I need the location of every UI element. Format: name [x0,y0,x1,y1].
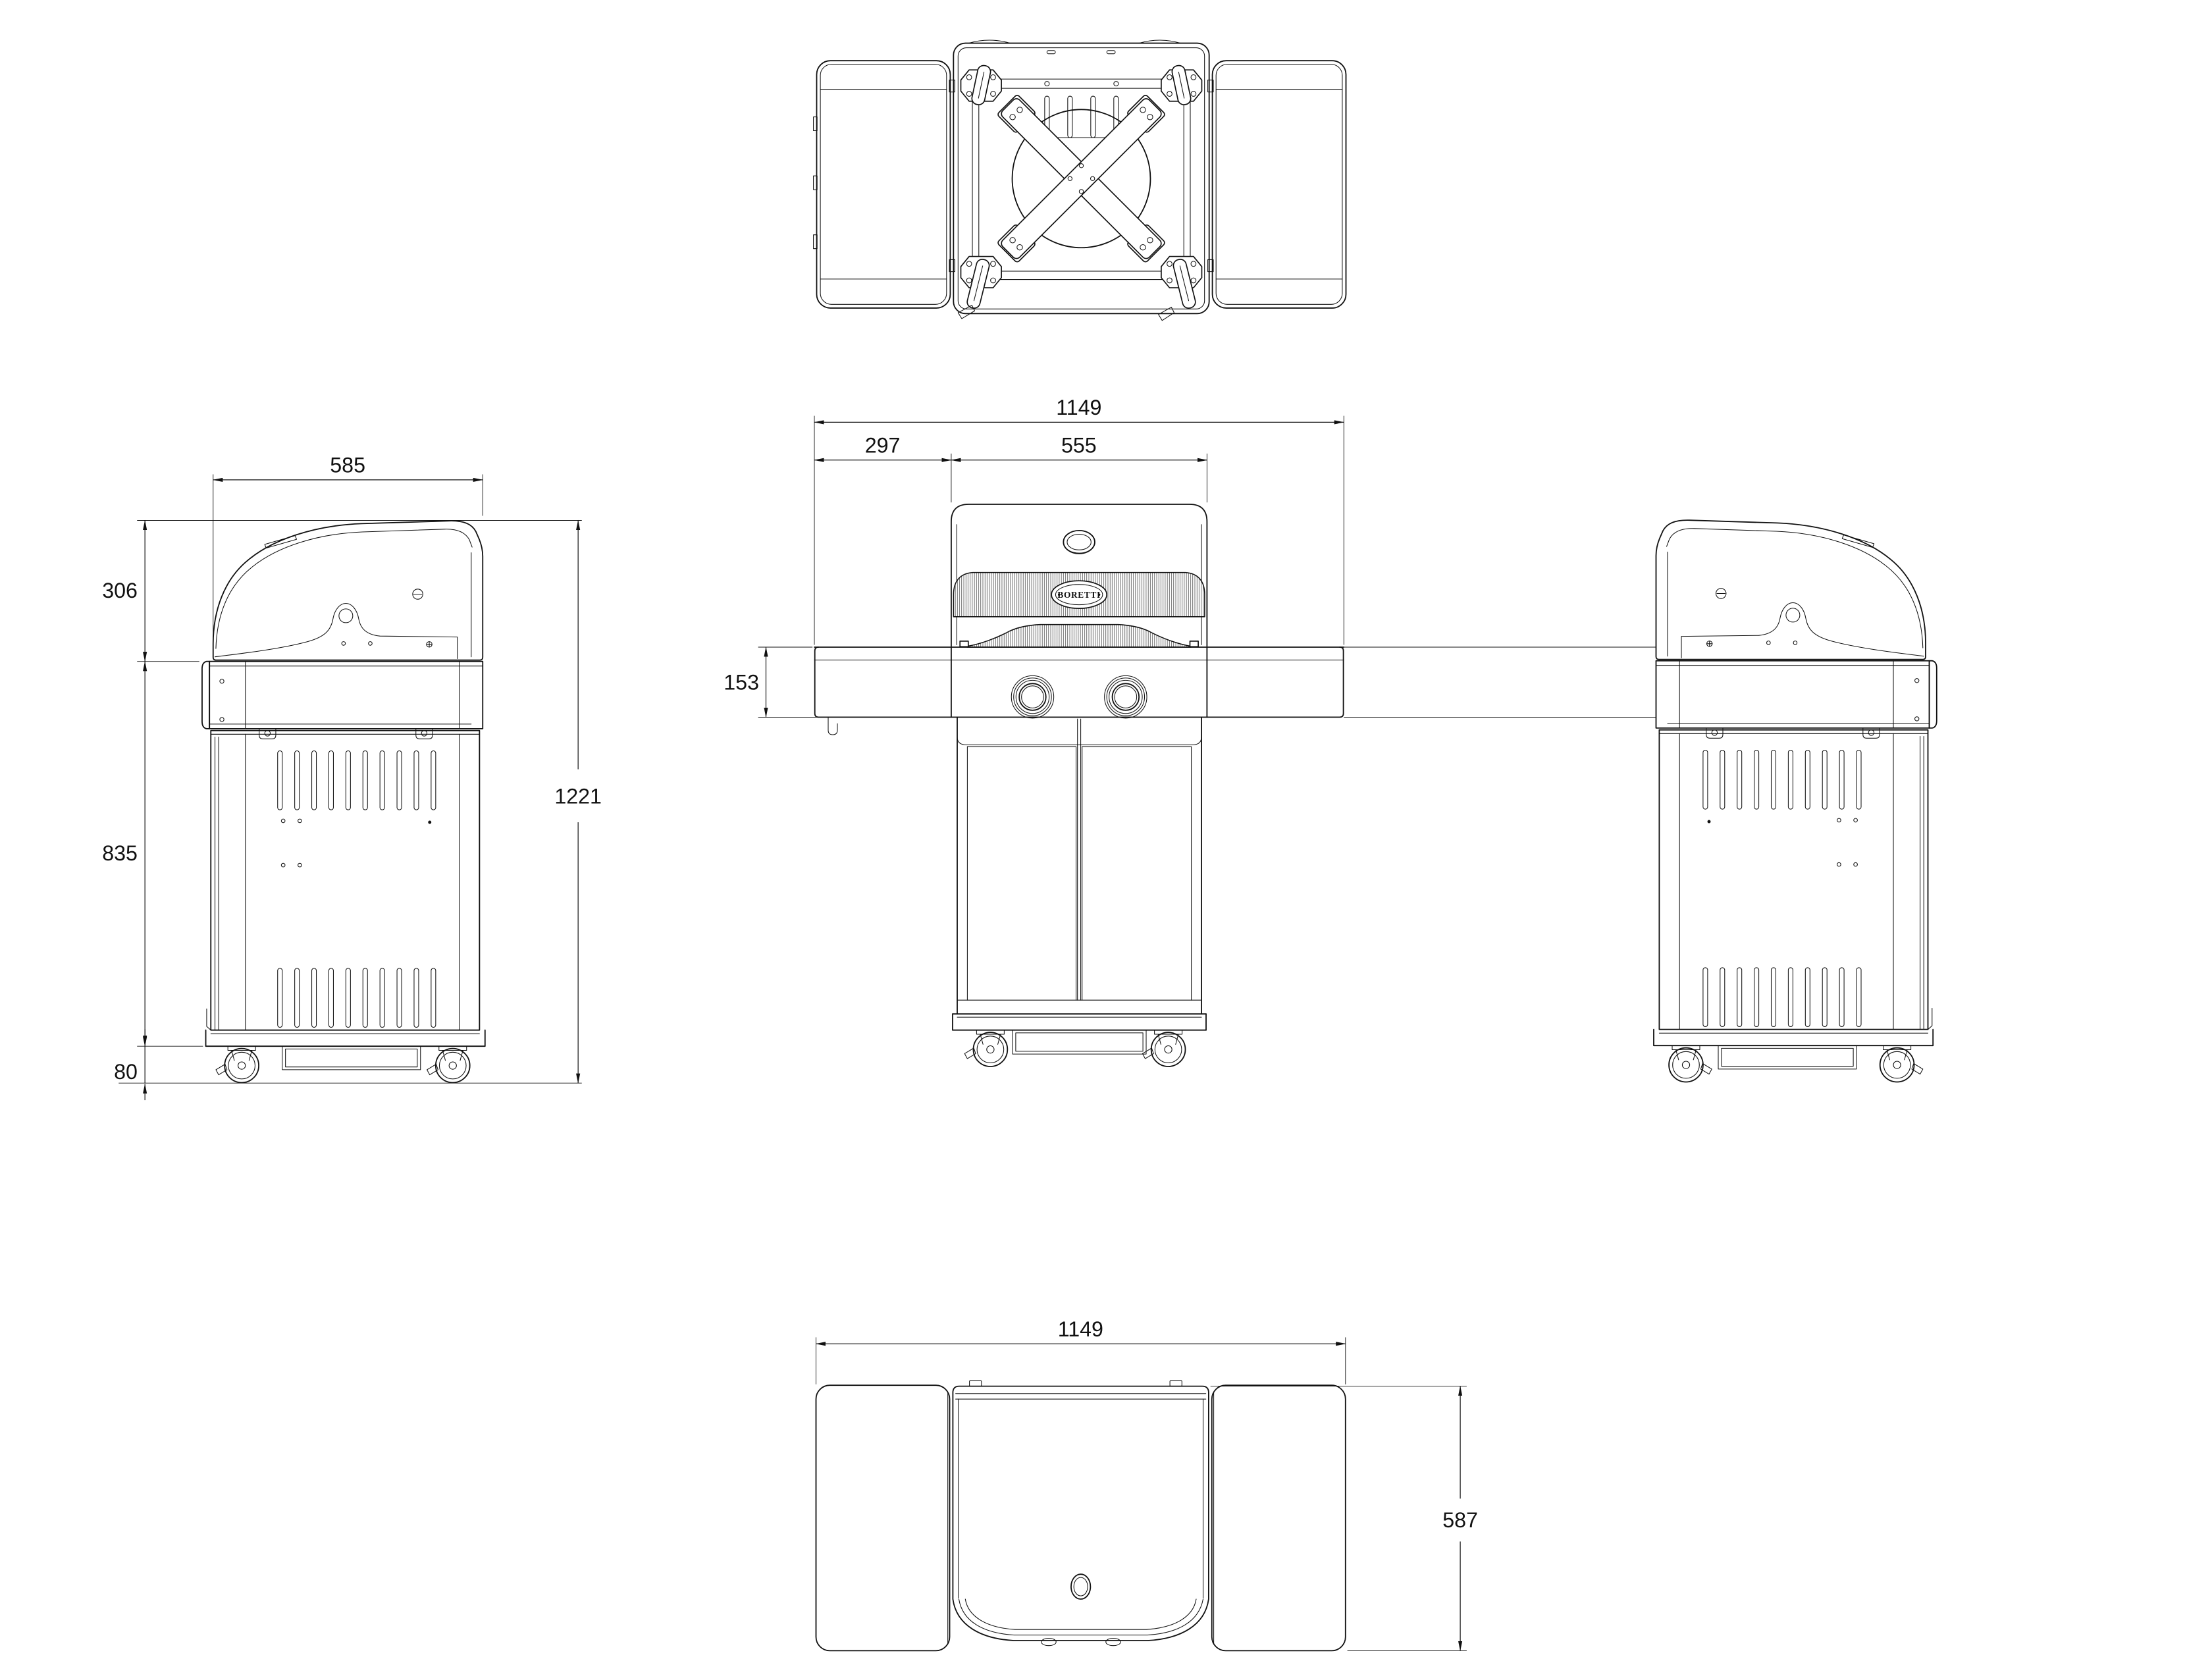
side-cart-panel [206,731,485,1047]
dim-shelf-height-label: 153 [724,670,759,694]
knob-right [1113,683,1140,710]
dimension-side-heights: 306 835 80 1221 [102,521,602,1101]
front-view: BORETTI [699,389,1662,1094]
dim-cart-height-label: 835 [102,841,138,865]
underside-left-shelf [814,61,951,308]
right-side-view [1649,513,1962,1107]
underside-right-shelf [1213,61,1346,308]
plan-hood [953,1381,1209,1646]
dimension-shelf-height: 153 [724,647,824,717]
tool-hook [828,717,837,735]
dim-hood-height-label: 306 [102,579,138,602]
left-side-view: 585 306 835 80 1221 [100,458,637,1103]
dim-body-width-label: 555 [1061,434,1097,458]
dimension-side-width: 585 [213,454,483,641]
knob-left [1019,683,1046,710]
dimension-plan-depth: 587 [1211,1386,1478,1651]
underside-view [805,32,1357,345]
dim-shelf-width-label: 297 [865,434,901,458]
dim-plan-depth-label: 587 [1442,1508,1478,1532]
front-hood: BORETTI [951,504,1207,647]
technical-drawing-sheet: 585 306 835 80 1221 [0,0,2212,1659]
side-view-geometry [202,521,485,1082]
brand-logo: BORETTI [1051,581,1107,608]
plan-left-shelf [816,1385,950,1650]
dim-caster-height-label: 80 [114,1060,138,1084]
plan-right-shelf [1212,1385,1346,1650]
dim-front-total-width-label: 1149 [1056,396,1101,419]
side-casters [216,1046,470,1082]
projection-lines [1344,647,1656,717]
dim-total-height-label: 1221 [554,784,602,808]
side-shelf-band [202,662,483,739]
top-plan-view: 1149 587 [804,1323,1523,1659]
brand-logo-text: BORETTI [1057,590,1101,600]
dim-side-width-label: 585 [330,454,365,477]
control-knobs [951,675,1207,718]
front-casters [964,1030,1185,1066]
dim-plan-width-label: 1149 [1058,1317,1103,1341]
dimension-plan-width: 1149 [816,1317,1346,1384]
hood-side-profile [213,521,483,660]
front-cart [953,717,1206,1030]
cross-brace [997,94,1165,263]
front-shelves [814,647,1344,735]
